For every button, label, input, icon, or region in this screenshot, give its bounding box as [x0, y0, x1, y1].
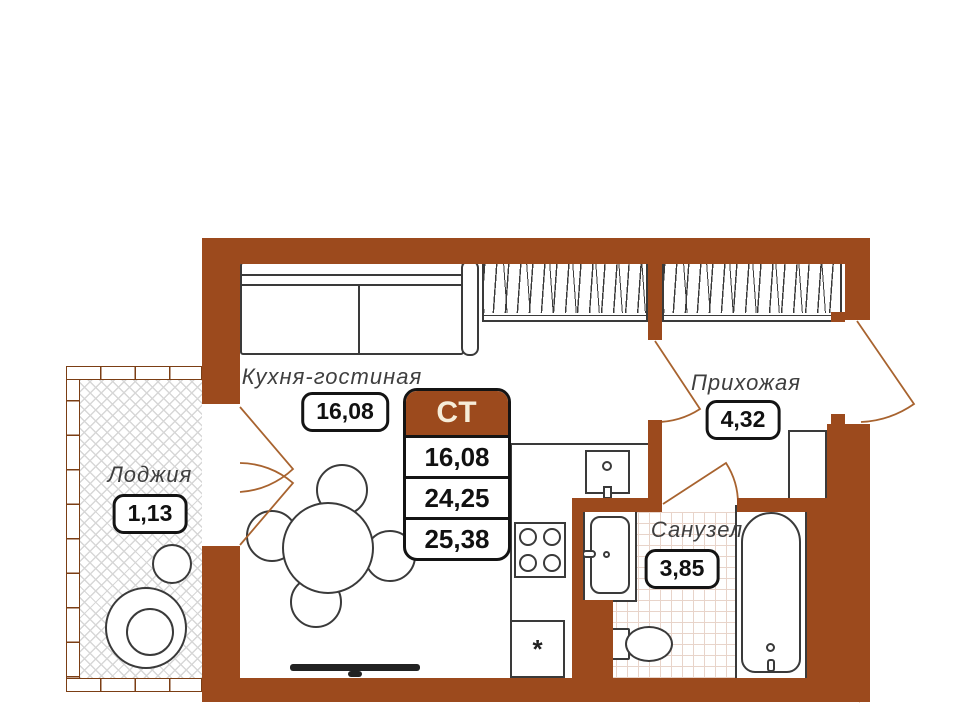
- stat-card-value: 25,38: [406, 517, 508, 558]
- wall: [202, 238, 870, 264]
- loggia-window-wall-top: [66, 366, 202, 380]
- stat-card-value: 24,25: [406, 476, 508, 517]
- room-label-hallway: Прихожая: [691, 370, 801, 396]
- wall: [831, 312, 845, 322]
- entrance-door-leaf: [857, 321, 914, 422]
- stat-card: СТ 16,08 24,25 25,38: [403, 388, 511, 561]
- area-badge-hallway: 4,32: [706, 400, 781, 440]
- wall: [202, 678, 870, 702]
- floorplan-canvas: *: [0, 0, 960, 710]
- wall: [202, 264, 240, 404]
- wall: [807, 512, 870, 678]
- room-label-bathroom: Санузел: [651, 517, 743, 543]
- balcony-door-leaf: [240, 407, 293, 492]
- loggia-window-wall-left: [66, 366, 80, 692]
- wall: [572, 512, 583, 600]
- area-badge-kitchen-living: 16,08: [301, 392, 389, 432]
- room-label-kitchen-living: Кухня-гостиная: [242, 364, 422, 390]
- wall: [827, 424, 870, 512]
- wall: [572, 600, 613, 678]
- area-badge-loggia: 1,13: [113, 494, 188, 534]
- stat-card-type: СТ: [406, 391, 508, 435]
- stat-card-value: 16,08: [406, 435, 508, 476]
- wall: [648, 264, 662, 340]
- wall: [831, 414, 845, 424]
- room-label-loggia: Лоджия: [108, 462, 193, 488]
- wall: [845, 264, 870, 320]
- area-badge-bathroom: 3,85: [645, 549, 720, 589]
- loggia-window-wall-bottom: [66, 678, 202, 692]
- wall: [572, 498, 662, 512]
- bathroom-door-leaf: [663, 463, 738, 504]
- wall: [737, 498, 827, 512]
